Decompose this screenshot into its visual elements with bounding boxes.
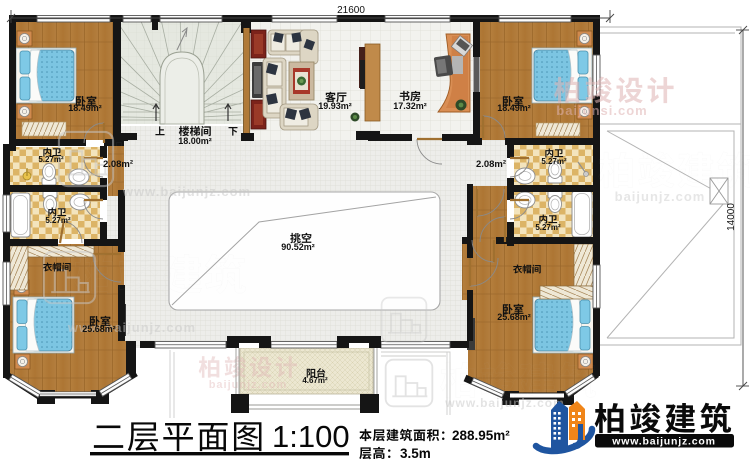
svg-text:2.08m²: 2.08m²	[103, 159, 133, 170]
svg-text:baijunjz.com: baijunjz.com	[209, 379, 288, 391]
svg-text:4.67m²: 4.67m²	[302, 376, 328, 385]
svg-text:21600: 21600	[337, 5, 365, 16]
svg-text:1:100: 1:100	[272, 419, 350, 454]
svg-text:5.27m²: 5.27m²	[541, 157, 567, 166]
svg-text:5.27m²: 5.27m²	[45, 216, 71, 225]
svg-text:14000: 14000	[726, 203, 737, 231]
svg-text:18.00m²: 18.00m²	[178, 136, 212, 146]
svg-text:www.baijunjz.com: www.baijunjz.com	[122, 184, 251, 199]
svg-text:baijunjz.com: baijunjz.com	[615, 189, 706, 204]
svg-text:3.5m: 3.5m	[400, 446, 431, 461]
svg-text:www.baijunjz.com: www.baijunjz.com	[611, 436, 715, 448]
svg-text:18.49m²: 18.49m²	[497, 103, 531, 113]
svg-text:19.93m²: 19.93m²	[318, 101, 352, 111]
svg-text:baijunsi.com: baijunsi.com	[556, 103, 647, 118]
svg-text:www.baijunjz.com: www.baijunjz.com	[444, 396, 565, 410]
svg-text:2.08m²: 2.08m²	[476, 159, 506, 170]
svg-text:5.27m²: 5.27m²	[535, 223, 561, 232]
svg-text:25.68m²: 25.68m²	[82, 324, 116, 334]
svg-text:90.52m²: 90.52m²	[281, 242, 315, 252]
svg-text:5.27m²: 5.27m²	[38, 155, 64, 164]
svg-text:25.68m²: 25.68m²	[497, 312, 531, 322]
svg-text:18.49m²: 18.49m²	[68, 103, 102, 113]
svg-text:17.32m²: 17.32m²	[393, 101, 427, 111]
svg-text:288.95m²: 288.95m²	[452, 428, 510, 443]
